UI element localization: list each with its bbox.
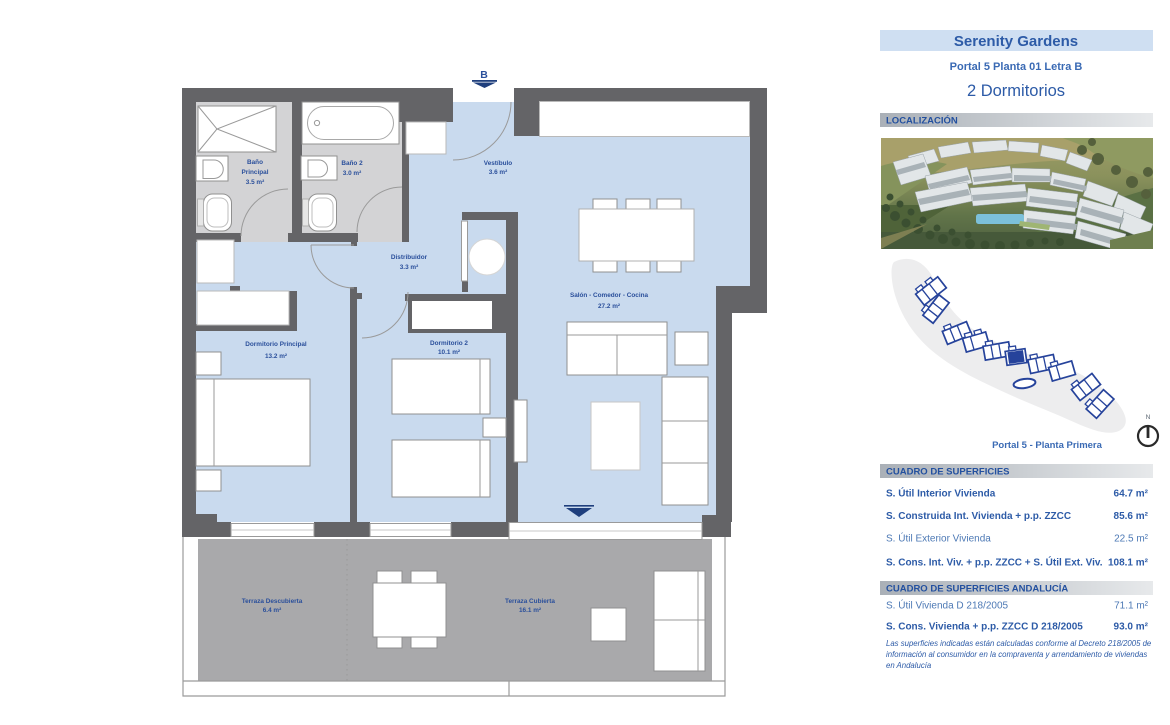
- svg-text:64.7 m²: 64.7 m²: [1114, 489, 1149, 500]
- svg-text:S. Útil Interior Vivienda: S. Útil Interior Vivienda: [886, 487, 996, 500]
- svg-text:Portal 5 - Planta Primera: Portal 5 - Planta Primera: [992, 440, 1103, 451]
- svg-text:16.1 m²: 16.1 m²: [519, 607, 541, 614]
- svg-text:3.5 m²: 3.5 m²: [246, 179, 264, 186]
- svg-text:Principal: Principal: [242, 169, 269, 176]
- svg-text:3.0 m²: 3.0 m²: [343, 170, 361, 177]
- svg-text:Portal 5 Planta 01 Letra B: Portal 5 Planta 01 Letra B: [950, 61, 1083, 73]
- svg-text:S. Cons. Vivienda + p.p. ZZCC: S. Cons. Vivienda + p.p. ZZCC D 218/2005: [886, 622, 1083, 633]
- svg-text:S. Construida Int. Vivienda +: S. Construida Int. Vivienda + p.p. ZZCC: [886, 511, 1071, 522]
- svg-text:Las superficies indicadas está: Las superficies indicadas están calculad…: [886, 639, 1152, 648]
- svg-text:S. Útil Vivienda D 218/2005: S. Útil Vivienda D 218/2005: [886, 599, 1009, 612]
- svg-text:Terraza Cubierta: Terraza Cubierta: [505, 598, 555, 605]
- svg-text:93.0 m²: 93.0 m²: [1114, 622, 1149, 633]
- svg-text:en Andalucía: en Andalucía: [886, 661, 932, 670]
- svg-text:Baño: Baño: [247, 159, 263, 166]
- svg-text:Dormitorio 2: Dormitorio 2: [430, 340, 468, 347]
- svg-text:B: B: [480, 69, 488, 81]
- svg-text:71.1 m²: 71.1 m²: [1114, 601, 1149, 612]
- svg-text:S. Útil Exterior Vivienda: S. Útil Exterior Vivienda: [886, 532, 991, 545]
- svg-text:10.1 m²: 10.1 m²: [438, 349, 460, 356]
- svg-text:CUADRO DE SUPERFICIES: CUADRO DE SUPERFICIES: [886, 467, 1010, 478]
- svg-text:108.1 m²: 108.1 m²: [1108, 558, 1149, 569]
- svg-text:Dormitorio Principal: Dormitorio Principal: [245, 341, 307, 348]
- svg-text:información al consumidor en l: información al consumidor en la comprave…: [886, 650, 1147, 659]
- svg-text:13.2 m²: 13.2 m²: [265, 353, 287, 360]
- svg-text:S. Cons. Int. Viv. + p.p. ZZCC: S. Cons. Int. Viv. + p.p. ZZCC + S. Útil…: [886, 556, 1103, 569]
- svg-text:Vestíbulo: Vestíbulo: [484, 160, 513, 167]
- svg-text:Salón - Comedor - Cocina: Salón - Comedor - Cocina: [570, 292, 649, 299]
- svg-text:3.3 m²: 3.3 m²: [400, 264, 418, 271]
- svg-text:LOCALIZACIÓN: LOCALIZACIÓN: [886, 115, 958, 127]
- svg-text:3.6 m²: 3.6 m²: [489, 169, 507, 176]
- svg-text:CUADRO DE SUPERFICIES ANDALUCÍ: CUADRO DE SUPERFICIES ANDALUCÍA: [886, 584, 1068, 595]
- svg-text:6.4 m²: 6.4 m²: [263, 607, 281, 614]
- svg-text:Terraza Descubierta: Terraza Descubierta: [242, 598, 303, 605]
- svg-text:22.5 m²: 22.5 m²: [1114, 534, 1149, 545]
- svg-text:Baño 2: Baño 2: [341, 160, 363, 167]
- svg-text:Distribuidor: Distribuidor: [391, 254, 428, 261]
- svg-text:Serenity Gardens: Serenity Gardens: [954, 33, 1078, 50]
- svg-text:2 Dormitorios: 2 Dormitorios: [967, 82, 1065, 100]
- svg-text:85.6 m²: 85.6 m²: [1114, 511, 1149, 522]
- svg-text:27.2 m²: 27.2 m²: [598, 303, 620, 310]
- svg-text:N: N: [1146, 414, 1151, 421]
